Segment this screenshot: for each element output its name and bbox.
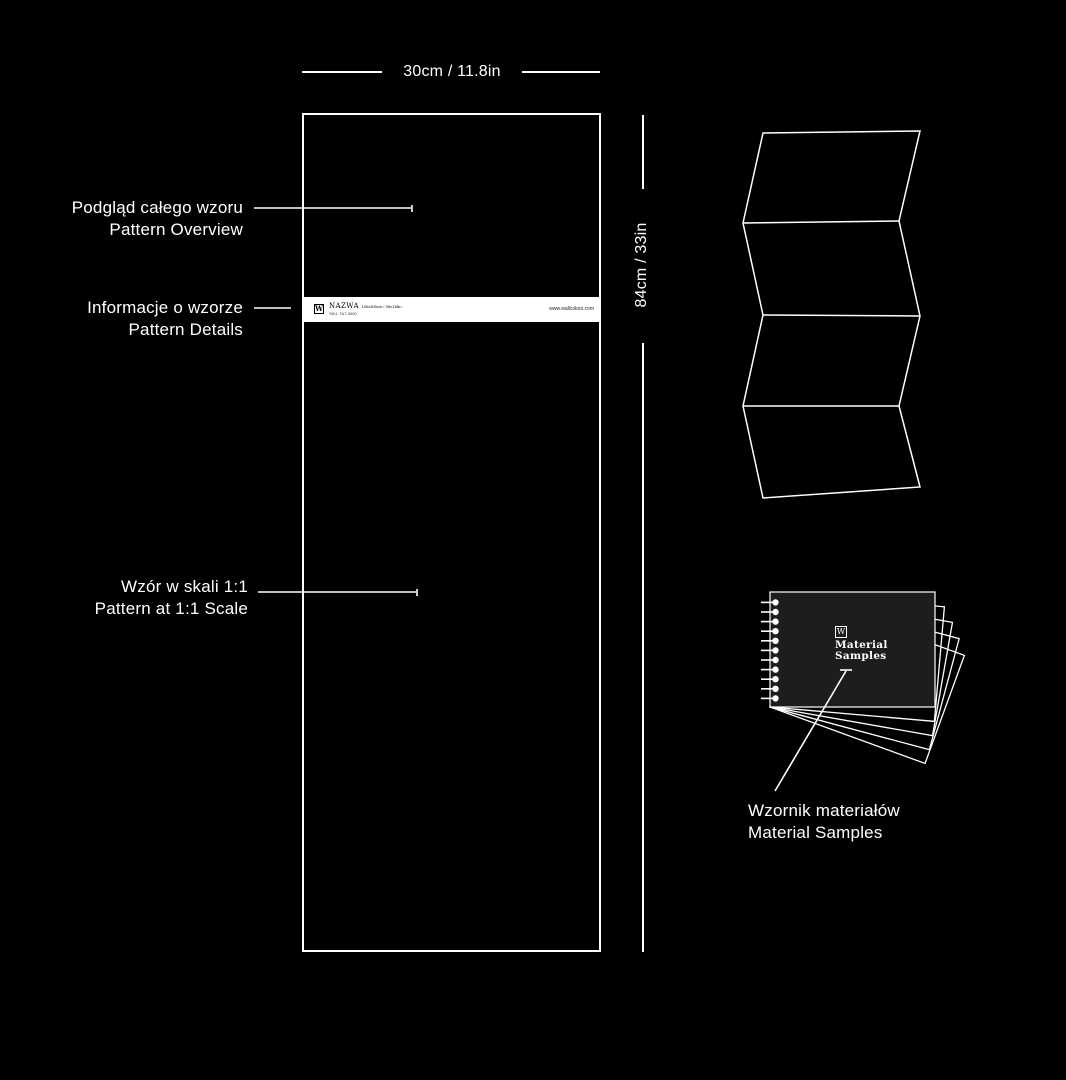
diagram-canvas: 30cm / 11.8in 84cm / 33in Podgląd całego…	[0, 0, 1066, 1080]
annotation-pattern-scale-en: Pattern at 1:1 Scale	[0, 598, 248, 620]
brand-logo-icon: W	[314, 304, 324, 314]
annotation-material-samples: Wzornik materiałów Material Samples	[748, 800, 900, 844]
pattern-name-line: NAZWA 100x300cm / 39x118in	[329, 302, 402, 310]
annotation-pattern-details-en: Pattern Details	[0, 319, 243, 341]
pattern-sku: SKU: TA7-0000	[329, 311, 357, 316]
pattern-name: NAZWA	[329, 302, 359, 310]
annotation-leaders	[254, 205, 417, 596]
annotation-material-samples-en: Material Samples	[748, 822, 900, 844]
height-dimension-label: 84cm / 33in	[633, 195, 653, 335]
width-dimension-label: 30cm / 11.8in	[382, 63, 522, 81]
annotation-pattern-details-pl: Informacje o wzorze	[0, 297, 243, 319]
annotation-pattern-scale-pl: Wzór w skali 1:1	[0, 576, 248, 598]
pattern-size: 100x300cm / 39x118in	[362, 304, 402, 309]
brand-website: www.wallcolors.com	[549, 306, 594, 312]
pattern-info-strip: W NAZWA 100x300cm / 39x118in SKU: TA7-00…	[302, 297, 601, 322]
diagram-lines-layer	[0, 0, 1066, 1080]
swatch-book-logo-icon: W	[835, 626, 847, 638]
annotation-pattern-scale: Wzór w skali 1:1 Pattern at 1:1 Scale	[0, 576, 248, 620]
annotation-pattern-overview-pl: Podgląd całego wzoru	[0, 197, 243, 219]
fold-line-1	[743, 221, 899, 223]
folded-sheet	[743, 131, 920, 498]
fold-line-2	[763, 315, 920, 316]
swatch-book-title-line2: Samples	[835, 651, 888, 662]
annotation-pattern-overview-en: Pattern Overview	[0, 219, 243, 241]
annotation-pattern-details: Informacje o wzorze Pattern Details	[0, 297, 243, 341]
annotation-pattern-overview: Podgląd całego wzoru Pattern Overview	[0, 197, 243, 241]
annotation-material-samples-pl: Wzornik materiałów	[748, 800, 900, 822]
swatch-book-title: Material Samples	[835, 640, 888, 662]
